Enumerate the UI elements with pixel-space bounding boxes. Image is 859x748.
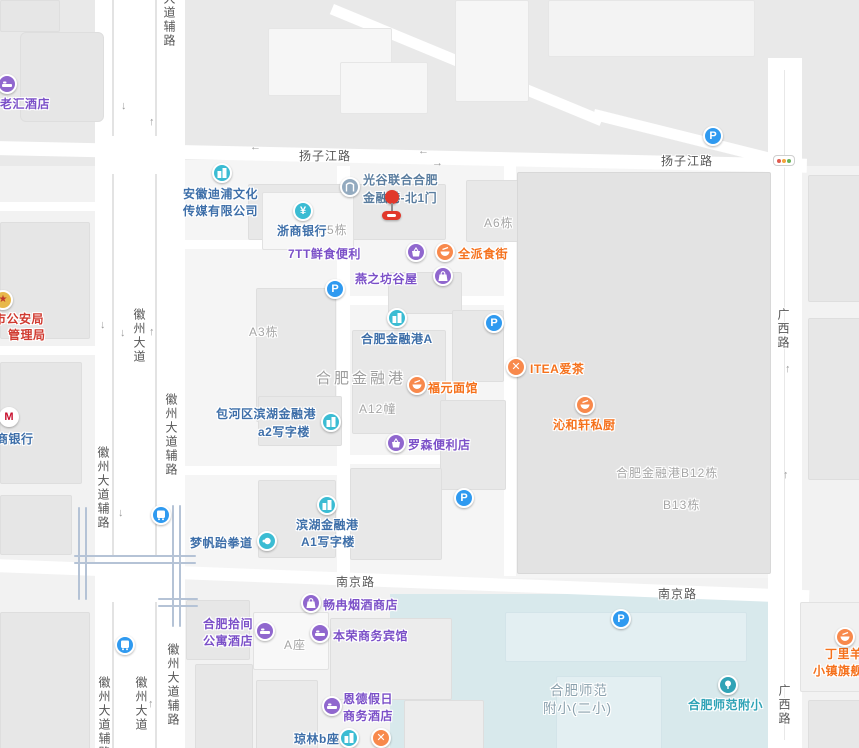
shopping-bag-icon[interactable] bbox=[433, 266, 453, 286]
building bbox=[195, 664, 253, 748]
poi-quanpai-food-street[interactable]: 全派食街 bbox=[458, 247, 508, 261]
huizhou-avenue-road bbox=[95, 0, 185, 748]
bowl-icon bbox=[839, 631, 851, 643]
fist-icon bbox=[261, 535, 273, 547]
building-icon bbox=[321, 499, 333, 511]
area-label-a-block: A座 bbox=[284, 636, 306, 653]
road-direction-arrow: ← bbox=[418, 145, 429, 157]
bag-icon bbox=[437, 270, 449, 282]
building-a1-office bbox=[350, 468, 442, 560]
school-tree-icon[interactable] bbox=[718, 675, 738, 695]
parking-icon[interactable]: P bbox=[611, 609, 631, 629]
bus-stop-icon[interactable] bbox=[115, 635, 135, 655]
building bbox=[548, 0, 755, 57]
rail-line bbox=[172, 505, 174, 627]
poi-merchants-bank[interactable]: 商银行 bbox=[0, 432, 34, 446]
area-label-a6: A6栋 bbox=[484, 214, 514, 231]
restaurant-icon[interactable]: ✕ bbox=[506, 357, 526, 377]
poi-laohui-hotel[interactable]: 老汇酒店 bbox=[0, 97, 50, 111]
area-label-school-line2: 附小(二小) bbox=[543, 697, 612, 717]
huizhou-lane-divider bbox=[112, 0, 114, 136]
parking-icon[interactable]: P bbox=[454, 488, 474, 508]
poi-dingliyang-line2[interactable]: 小镇旗舰店 bbox=[813, 664, 859, 678]
poi-ende-hotel-line2[interactable]: 商务酒店 bbox=[343, 709, 393, 723]
poi-qinhexuan[interactable]: 沁和轩私厨 bbox=[553, 418, 616, 432]
marker-head bbox=[385, 190, 399, 204]
bus-icon bbox=[155, 509, 167, 521]
basket-icon[interactable] bbox=[406, 242, 426, 262]
private-kitchen-icon[interactable] bbox=[575, 395, 595, 415]
road-label-yangzijiang-e: 扬子江路 bbox=[661, 152, 713, 169]
building-icon bbox=[325, 416, 337, 428]
road-label-nanjing-e: 南京路 bbox=[658, 585, 697, 602]
poi-zheshang-bank[interactable]: 浙商银行 bbox=[277, 224, 327, 238]
rail-line bbox=[74, 562, 196, 564]
huizhou-lane-divider bbox=[155, 0, 157, 136]
poi-a2-office-line2[interactable]: a2写字楼 bbox=[258, 425, 310, 439]
area-label-financial-port: 合肥金融港 bbox=[316, 367, 406, 388]
road-label-huizhou-bot: 徽州大道 bbox=[133, 676, 150, 732]
poi-a2-office-line1[interactable]: 包河区滨湖金融港 bbox=[216, 407, 316, 421]
bank-yuan-icon[interactable]: ¥ bbox=[293, 201, 313, 221]
building-qionglin bbox=[404, 700, 484, 748]
restaurant-icon[interactable]: ✕ bbox=[371, 728, 391, 748]
door-icon bbox=[344, 181, 356, 193]
office-building-icon[interactable] bbox=[339, 728, 359, 748]
road-direction-arrow: ↑ bbox=[149, 116, 155, 128]
rail-line bbox=[74, 555, 196, 557]
street bbox=[0, 202, 95, 211]
bag-icon bbox=[305, 597, 317, 609]
building bbox=[808, 175, 859, 302]
building bbox=[455, 0, 529, 102]
poi-shijian-hotel-line1[interactable]: 合肥拾间 bbox=[203, 617, 253, 631]
road-direction-arrow: ↑ bbox=[785, 363, 791, 375]
building bbox=[0, 612, 90, 748]
poi-shifan-primary-school[interactable]: 合肥师范附小 bbox=[688, 698, 763, 712]
poi-a1-office-line2[interactable]: A1写字楼 bbox=[301, 535, 355, 549]
area-label-a12: A12幢 bbox=[359, 400, 396, 417]
road-direction-arrow: ↓ bbox=[118, 507, 124, 519]
gate-icon[interactable] bbox=[340, 177, 360, 197]
building bbox=[808, 700, 859, 748]
area-label-b13: B13栋 bbox=[663, 496, 700, 513]
rail-line bbox=[158, 605, 198, 607]
office-building-icon[interactable] bbox=[317, 495, 337, 515]
road-direction-arrow: ↓ bbox=[121, 100, 127, 112]
tree-icon bbox=[722, 679, 734, 691]
rail-line bbox=[85, 507, 87, 600]
building-icon bbox=[343, 732, 355, 744]
convenience-store-icon[interactable] bbox=[386, 433, 406, 453]
road-label-nanjing-w: 南京路 bbox=[336, 573, 375, 590]
traffic-light-red bbox=[777, 159, 781, 163]
poi-police-bureau-line1[interactable]: 市公安局 bbox=[0, 312, 44, 326]
road-direction-arrow: → bbox=[432, 157, 443, 169]
poi-anhui-dipu-line2[interactable]: 传媒有限公司 bbox=[183, 204, 258, 218]
basket-icon bbox=[410, 246, 422, 258]
road-label-huizhou-fu-bot-r: 徽州大道辅路 bbox=[165, 643, 182, 727]
poi-yanzhifang[interactable]: 燕之坊谷屋 bbox=[355, 272, 418, 286]
building-icon bbox=[216, 167, 228, 179]
building bbox=[808, 318, 859, 480]
poi-7tt-convenience[interactable]: 7TT鲜食便利 bbox=[288, 247, 361, 261]
bus-stop-icon[interactable] bbox=[151, 505, 171, 525]
poi-fuyuan-noodles[interactable]: 福元面馆 bbox=[428, 381, 478, 395]
poi-dingliyang-line1[interactable]: 丁里羊 bbox=[825, 647, 859, 661]
bus-icon bbox=[119, 639, 131, 651]
traffic-light-icon bbox=[773, 155, 795, 166]
area-label-b12: 合肥金融港B12栋 bbox=[616, 464, 718, 481]
poi-ende-hotel-line1[interactable]: 恩德假日 bbox=[343, 692, 393, 706]
office-building-icon[interactable] bbox=[321, 412, 341, 432]
bed-icon bbox=[326, 700, 338, 712]
poi-benrong-hotel[interactable]: 本荣商务宾馆 bbox=[333, 629, 408, 643]
poi-lawson[interactable]: 罗森便利店 bbox=[408, 438, 471, 452]
road-direction-arrow: ← bbox=[250, 141, 261, 153]
road-label-huizhou-mid: 徽州大道 bbox=[131, 308, 148, 364]
hotel-icon[interactable] bbox=[310, 623, 330, 643]
bowl-icon bbox=[579, 399, 591, 411]
area-label-a3: A3栋 bbox=[249, 323, 279, 340]
road-label-huizhou-fu-mid-r: 徽州大道辅路 bbox=[163, 393, 180, 477]
bed-icon bbox=[1, 78, 13, 90]
road-label-huizhou-fu-mid-l: 徽州大道辅路 bbox=[95, 446, 112, 530]
poi-mengfan-taekwondo[interactable]: 梦帆跆拳道 bbox=[190, 536, 253, 550]
bed-icon bbox=[314, 627, 326, 639]
huizhou-lane-divider bbox=[155, 174, 157, 556]
hotel-icon[interactable] bbox=[255, 621, 275, 641]
parking-icon[interactable]: P bbox=[325, 279, 345, 299]
building bbox=[340, 62, 428, 114]
road-label-huizhou-fu-top: 大道辅路 bbox=[161, 0, 178, 48]
parking-icon[interactable]: P bbox=[703, 126, 723, 146]
area-label-school-line1: 合肥师范 bbox=[550, 679, 608, 699]
street bbox=[0, 346, 95, 355]
poi-jinronggang-a[interactable]: 合肥金融港A bbox=[361, 332, 433, 346]
poi-itea[interactable]: ITEA爱茶 bbox=[530, 362, 584, 376]
huizhou-lane-divider bbox=[155, 602, 157, 748]
building-icon bbox=[391, 312, 403, 324]
road-label-huizhou-fu-bot-l: 徽州大道辅路 bbox=[96, 676, 113, 748]
taekwondo-fist-icon[interactable] bbox=[257, 531, 277, 551]
poi-qionglin-b[interactable]: 琼林b座 bbox=[294, 732, 339, 746]
building bbox=[0, 0, 60, 32]
marker-base-slot bbox=[387, 214, 396, 217]
rail-line bbox=[78, 507, 80, 600]
poi-north-gate-line1[interactable]: 光谷联合合肥 bbox=[363, 173, 438, 187]
poi-shijian-hotel-line2[interactable]: 公寓酒店 bbox=[203, 634, 253, 648]
poi-anhui-dipu-line1[interactable]: 安徽迪浦文化 bbox=[183, 187, 258, 201]
road-label-guangxi-n: 广西路 bbox=[775, 308, 792, 350]
road-label-guangxi-s: 广西路 bbox=[776, 684, 793, 726]
china-merchants-bank-icon[interactable]: M bbox=[0, 407, 19, 427]
basket-icon bbox=[390, 437, 402, 449]
food-bowl-icon[interactable] bbox=[435, 242, 455, 262]
building bbox=[0, 495, 72, 555]
bed-icon bbox=[259, 625, 271, 637]
hotel-icon[interactable] bbox=[322, 696, 342, 716]
road-direction-arrow: ↓ bbox=[100, 319, 106, 331]
road-direction-arrow: ↑ bbox=[149, 326, 155, 338]
road-label-yangzijiang-w: 扬子江路 bbox=[299, 147, 351, 164]
poi-changran-shop[interactable]: 畅冉烟酒商店 bbox=[323, 598, 398, 612]
road-direction-arrow: ↑ bbox=[783, 469, 789, 481]
guangxi-center-line bbox=[784, 70, 785, 740]
bowl-icon bbox=[439, 246, 451, 258]
parking-icon[interactable]: P bbox=[484, 313, 504, 333]
road-direction-arrow: ↓ bbox=[120, 327, 126, 339]
rail-line bbox=[179, 505, 181, 627]
food-bowl-icon[interactable] bbox=[835, 627, 855, 647]
poi-north-gate-line2[interactable]: 金融港-北1门 bbox=[363, 191, 437, 205]
map-canvas[interactable]: ↓ ↑ ← ← → ↓ ↓ ↑ ↓ ↑ ↑ ↑ 扬子江路 扬子江路 南京路 南京… bbox=[0, 0, 859, 748]
poi-police-bureau-line2[interactable]: 管理局 bbox=[8, 328, 46, 342]
noodle-bowl-icon[interactable] bbox=[407, 375, 427, 395]
poi-a1-office-line1[interactable]: 滨湖金融港 bbox=[296, 518, 359, 532]
company-building-icon[interactable] bbox=[212, 163, 232, 183]
huizhou-lane-divider bbox=[112, 174, 114, 556]
street bbox=[185, 466, 337, 475]
rail-line bbox=[158, 598, 198, 600]
office-building-icon[interactable] bbox=[387, 308, 407, 328]
tobacco-shop-icon[interactable] bbox=[301, 593, 321, 613]
traffic-light-yellow bbox=[782, 159, 786, 163]
traffic-light-green bbox=[787, 159, 791, 163]
bowl-icon bbox=[411, 379, 423, 391]
